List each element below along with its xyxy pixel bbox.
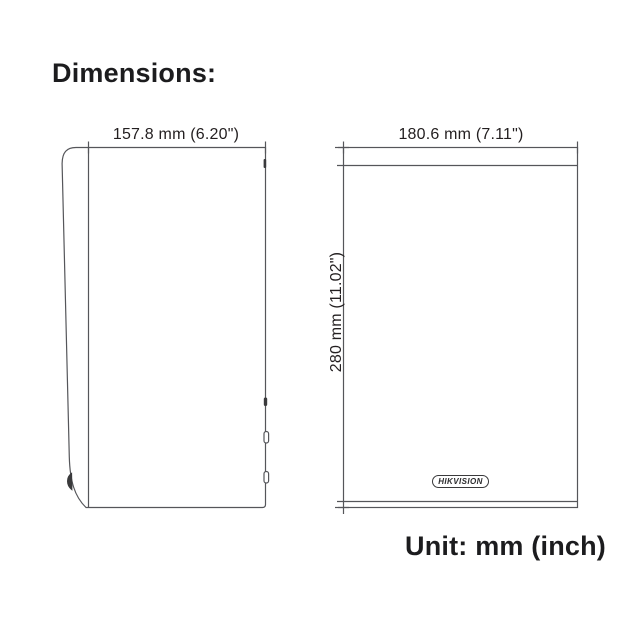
side-view-back-bump-1 bbox=[264, 398, 267, 407]
side-view-back-bump-3 bbox=[264, 472, 269, 484]
hikvision-logo-text: HIKVISION bbox=[438, 477, 483, 486]
side-view-foot bbox=[68, 474, 72, 490]
side-view-outline bbox=[62, 142, 269, 508]
front-view-body bbox=[344, 148, 578, 508]
unit-note: Unit: mm (inch) bbox=[405, 531, 606, 562]
front-view-width-label: 180.6 mm (7.11") bbox=[343, 126, 579, 144]
dimension-sheet: Dimensions: bbox=[0, 0, 640, 640]
side-view-back-bump-2 bbox=[264, 432, 269, 444]
front-view-height-label: 280 mm (11.02") bbox=[328, 232, 348, 392]
front-view-outline bbox=[335, 142, 578, 515]
side-view-body bbox=[62, 148, 265, 508]
side-view-width-label: 157.8 mm (6.20") bbox=[84, 126, 268, 144]
side-view-back-notch bbox=[264, 159, 267, 168]
hikvision-logo: HIKVISION bbox=[432, 475, 489, 488]
